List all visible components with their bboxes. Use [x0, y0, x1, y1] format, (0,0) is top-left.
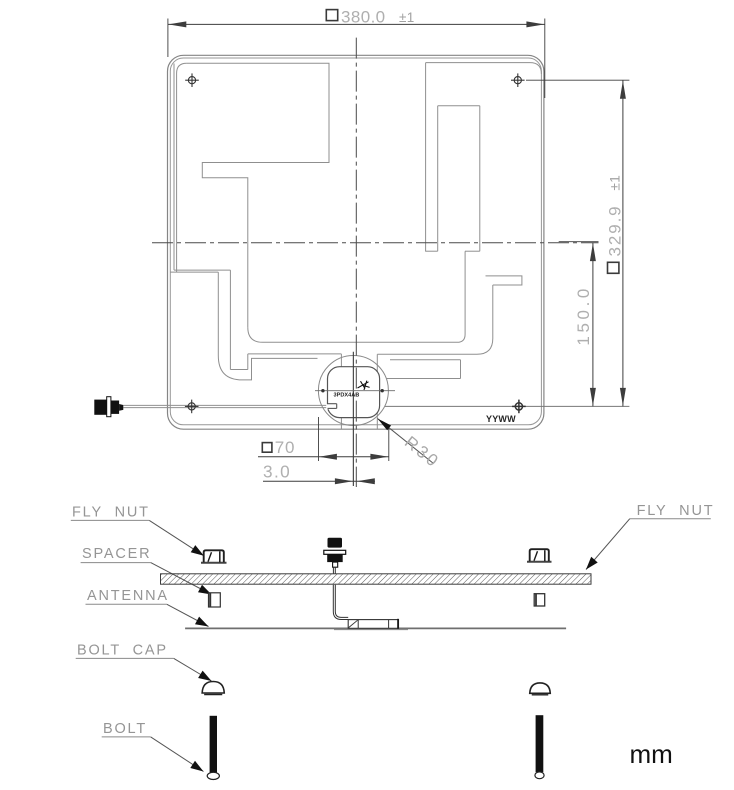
- svg-text:ANTENNA: ANTENNA: [87, 588, 169, 604]
- svg-text:3PDX4AB: 3PDX4AB: [334, 392, 360, 398]
- svg-text:380.0: 380.0: [341, 8, 386, 27]
- svg-text:70: 70: [275, 438, 296, 457]
- svg-text:SPACER: SPACER: [82, 546, 151, 562]
- svg-text:150.0: 150.0: [574, 285, 593, 346]
- svg-text:±1: ±1: [608, 175, 623, 191]
- svg-text:BOLT: BOLT: [103, 721, 147, 737]
- svg-text:±1: ±1: [399, 10, 415, 25]
- svg-text:3.0: 3.0: [263, 462, 291, 482]
- svg-text:YYWW: YYWW: [486, 414, 516, 424]
- svg-text:329.9: 329.9: [606, 204, 625, 256]
- svg-text:FLY NUT: FLY NUT: [637, 503, 715, 519]
- svg-text:BOLT CAP: BOLT CAP: [77, 643, 168, 659]
- svg-text:FLY NUT: FLY NUT: [72, 504, 150, 520]
- svg-text:mm: mm: [630, 739, 673, 769]
